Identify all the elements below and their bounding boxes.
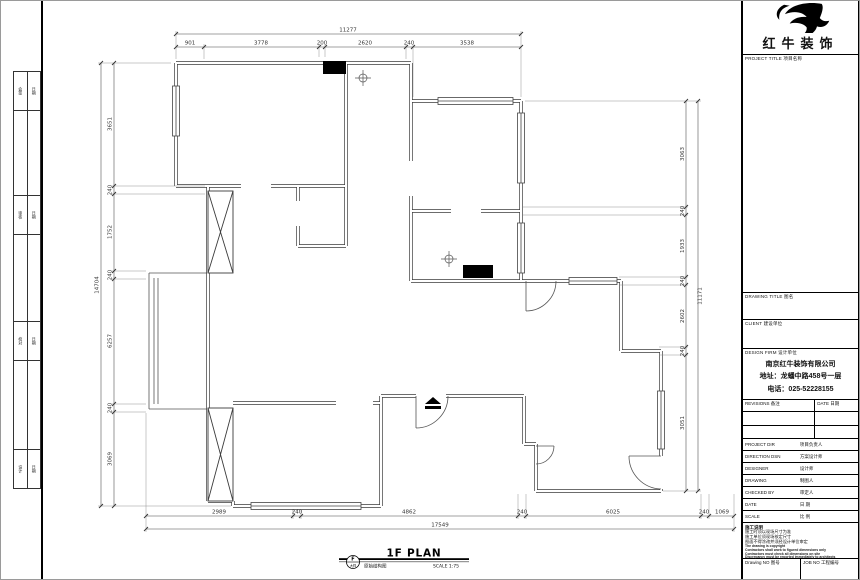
dim-label: 240 (404, 41, 415, 47)
client-label: CLIENT 建设单位 (743, 320, 858, 327)
revisions-section: REVISIONS 备注 DATE 日期 (743, 400, 858, 439)
dim-label: 2989 (212, 510, 226, 516)
row-label-en: DATE (743, 502, 798, 507)
drawing-title-section: DRAWING TITLE 图名 (743, 293, 858, 320)
project-title-section: PROJECT TITLE 项目名称 (743, 55, 858, 293)
sign-cell-row: 会签 日期 (13, 71, 41, 111)
revision-empty-row (743, 412, 858, 426)
drawing-sheet: 11277 901 3778 200 2620 240 3538 17549 2… (0, 0, 860, 580)
door-arcs (416, 281, 661, 489)
revision-empty-row (743, 426, 858, 439)
sign-label: 日期 (27, 72, 41, 110)
logo-section: 红牛装饰 (743, 1, 858, 55)
xbox-shafts (208, 191, 233, 501)
signature-strip: 会签 日期 审核 日期 校对 日期 设计 日期 (13, 71, 41, 489)
flue-shafts (323, 61, 493, 278)
row-label-cn: 日 期 (798, 502, 810, 508)
row-label-en: PROJECT DIR (743, 442, 798, 447)
row-date: DATE 日 期 (743, 499, 858, 511)
dim-label: 3651 (108, 117, 114, 131)
sign-empty-row (13, 111, 41, 196)
row-label-en: SCALE (743, 514, 798, 519)
redbull-logo-icon (753, 1, 849, 33)
row-direction-dsn: DIRECTION DSN 方案设计师 (743, 451, 858, 463)
dim-label: 1752 (108, 225, 114, 239)
company-address: 地址：龙蟠中路458号一层 (743, 371, 858, 383)
company-phone: 电话：025-52228155 (743, 384, 858, 396)
row-label-cn: 项目负责人 (798, 442, 823, 448)
row-label-cn: 方案设计师 (798, 454, 823, 460)
sign-label: 日期 (27, 322, 41, 360)
sign-empty-row (13, 361, 41, 450)
dim-label: 3051 (680, 416, 686, 430)
dim-label: 200 (317, 41, 328, 47)
dim-label: 240 (680, 205, 686, 216)
row-label-en: DESIGNER (743, 466, 798, 471)
dim-label: 4862 (402, 510, 416, 516)
drawing-no-label: Drawing NO 图号 (743, 559, 800, 580)
sign-label: 会签 (14, 72, 27, 110)
row-drawing: DRAWING 制图人 (743, 475, 858, 487)
row-label-cn: 审定人 (798, 490, 814, 496)
dim-label: 240 (108, 184, 114, 195)
row-label-cn: 设计师 (798, 466, 814, 472)
dim-label: 6257 (108, 334, 114, 348)
sign-label: 日期 (27, 450, 41, 488)
dim-total-top: 11277 (339, 28, 357, 34)
plan-title: 1F PLAN (386, 548, 441, 560)
row-scale: SCALE 比 例 (743, 511, 858, 523)
dim-label: 240 (680, 345, 686, 356)
dim-total-bottom: 17549 (431, 523, 449, 529)
row-label-en: DRAWING (743, 478, 798, 483)
dim-label: 240 (292, 510, 303, 516)
detail-ref-letter: F (351, 557, 354, 563)
sign-label: 审核 (14, 196, 27, 234)
dim-total-right: 11171 (698, 287, 704, 305)
plan-name-cn: 原始结构图 (364, 563, 387, 570)
design-firm-section: DESIGN FIRM 设计单位 南京红牛装饰有限公司 地址：龙蟠中路458号一… (743, 349, 858, 400)
sheet-fold-line (41, 1, 43, 580)
dim-label: 3069 (108, 452, 114, 466)
construction-notes: 施工说明 施工时须以现场尺寸为准 施工单位须现场核定尺寸 图面不得涂改并须经设计… (743, 523, 858, 559)
sign-empty-row (13, 235, 41, 322)
dim-label: 901 (185, 41, 196, 47)
row-label-cn: 比 例 (798, 514, 810, 520)
dim-label: 240 (108, 269, 114, 280)
entry-arrow (425, 397, 441, 409)
plan-title-group: F 大样 1F PLAN 原始结构图 SCALE 1:75 (339, 548, 469, 570)
brand-name: 红牛装饰 (762, 33, 838, 54)
company-name: 南京红牛装饰有限公司 (743, 359, 858, 371)
dim-total-left: 14704 (95, 276, 101, 294)
dim-label: 240 (680, 275, 686, 286)
row-checked-by: CHECKED BY 审定人 (743, 487, 858, 499)
dim-label: 3778 (254, 41, 268, 47)
detail-ref-sub: 大样 (350, 563, 357, 568)
date-label: DATE 日期 (814, 400, 858, 411)
revisions-label: REVISIONS 备注 (743, 400, 814, 411)
drawing-title-label: DRAWING TITLE 图名 (743, 293, 858, 300)
floor-plan-canvas: 11277 901 3778 200 2620 240 3538 17549 2… (1, 1, 741, 580)
dim-label: 3063 (680, 147, 686, 161)
dim-label: 6025 (606, 510, 620, 516)
sign-label: 校对 (14, 322, 27, 360)
sign-cell-row: 校对 日期 (13, 322, 41, 361)
project-title-label: PROJECT TITLE 项目名称 (743, 55, 858, 62)
dim-label: 3538 (460, 41, 474, 47)
row-designer: DESIGNER 设计师 (743, 463, 858, 475)
sign-label: 设计 (14, 450, 27, 488)
window-symbols (173, 86, 665, 510)
plan-scale: SCALE 1:75 (433, 564, 459, 570)
row-project-dir: PROJECT DIR 项目负责人 (743, 439, 858, 451)
row-label-en: DIRECTION DSN (743, 454, 798, 459)
balcony-outline (149, 273, 208, 409)
client-section: CLIENT 建设单位 (743, 320, 858, 349)
sign-label: 日期 (27, 196, 41, 234)
design-firm-label: DESIGN FIRM 设计单位 (743, 349, 858, 356)
dim-label: 240 (699, 510, 710, 516)
dim-label: 1069 (715, 510, 729, 516)
sign-cell-row: 设计 日期 (13, 450, 41, 489)
dim-label: 2602 (680, 309, 686, 323)
number-section: Drawing NO 图号 JOB NO 工程编号 (743, 559, 858, 580)
dim-label: 240 (108, 402, 114, 413)
dim-label: 240 (517, 510, 528, 516)
dim-label: 1933 (680, 239, 686, 253)
job-no-label: JOB NO 工程编号 (800, 559, 858, 580)
title-block-panel: 红牛装饰 PROJECT TITLE 项目名称 DRAWING TITLE 图名… (741, 1, 859, 580)
row-label-en: CHECKED BY (743, 490, 798, 495)
sign-cell-row: 审核 日期 (13, 196, 41, 235)
dim-label: 2620 (358, 41, 372, 47)
row-label-cn: 制图人 (798, 478, 814, 484)
